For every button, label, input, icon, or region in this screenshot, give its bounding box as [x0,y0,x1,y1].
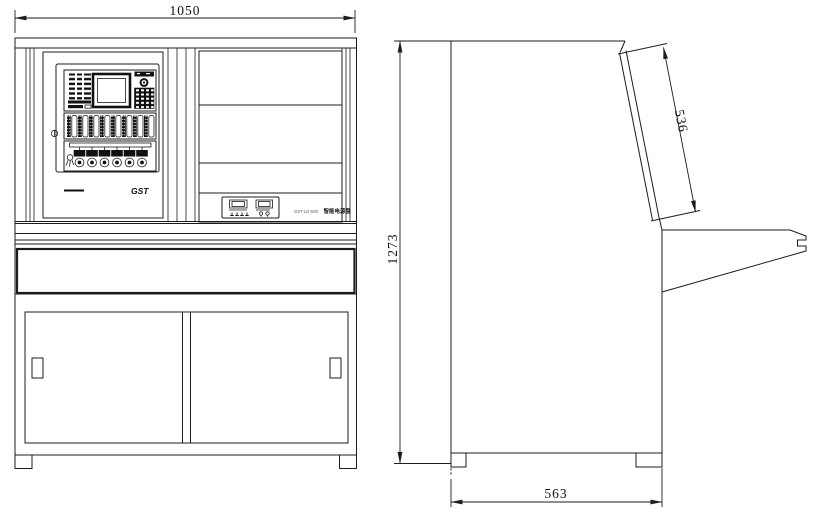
knob-row [64,141,156,171]
right-bay-panel [199,51,342,222]
side-foot-right [636,453,662,467]
nameplate-dash [64,190,84,192]
bell-icon [66,155,74,167]
dim-base-depth: 563 [451,468,662,507]
control-panel-face [56,64,159,172]
display-section [64,70,156,111]
door-handle-left [32,358,43,378]
dim-front-width: 1050 [15,3,355,33]
side-view: 536 1273 563 [385,41,806,507]
model-label: GST-LD-D02 智能电源盘 [294,200,351,217]
console-frame [15,38,357,224]
cabinet-door-frame [25,312,348,443]
dim-overall-height-text: 1273 [385,234,400,265]
power-label-row-right [256,210,270,211]
drawer-panel [17,249,355,293]
right-bay: GST-LD-D02 智能电源盘 [199,51,351,222]
brand-logo-text: GST [131,186,149,196]
power-label-row-left [229,210,247,211]
side-foot-left [451,453,466,467]
lock-icon [51,130,57,136]
dim-base-depth-text: 563 [544,486,567,501]
technical-drawing-page: GST [0,0,814,512]
technical-drawing-canvas: GST [0,0,814,512]
door-handle-right [330,358,341,378]
cabinet [15,294,357,469]
foot-left [15,455,32,469]
terminal-icons [230,213,248,216]
module-slot [67,116,154,138]
power-display-right [256,200,273,208]
lamp-icons [259,212,269,217]
keypad [135,72,155,109]
tilt-panel [620,51,663,231]
desk-band [15,224,357,295]
cabinet-outline [15,294,357,455]
power-panel [222,197,279,218]
indicator-block [68,74,91,109]
dim-panel-length-text: 536 [672,108,691,134]
rotary-knob [140,78,149,87]
control-knob [74,147,148,167]
desk-ledge [662,230,806,292]
dim-front-width-text: 1050 [170,3,201,18]
dim-overall-height: 1273 [385,41,451,464]
front-view: GST [15,3,357,469]
key-grid [135,88,155,109]
lcd-screen [93,74,130,107]
left-bay-door: GST [43,52,163,218]
power-display-left [230,200,248,208]
foot-right [340,455,357,469]
module-row [64,113,156,139]
